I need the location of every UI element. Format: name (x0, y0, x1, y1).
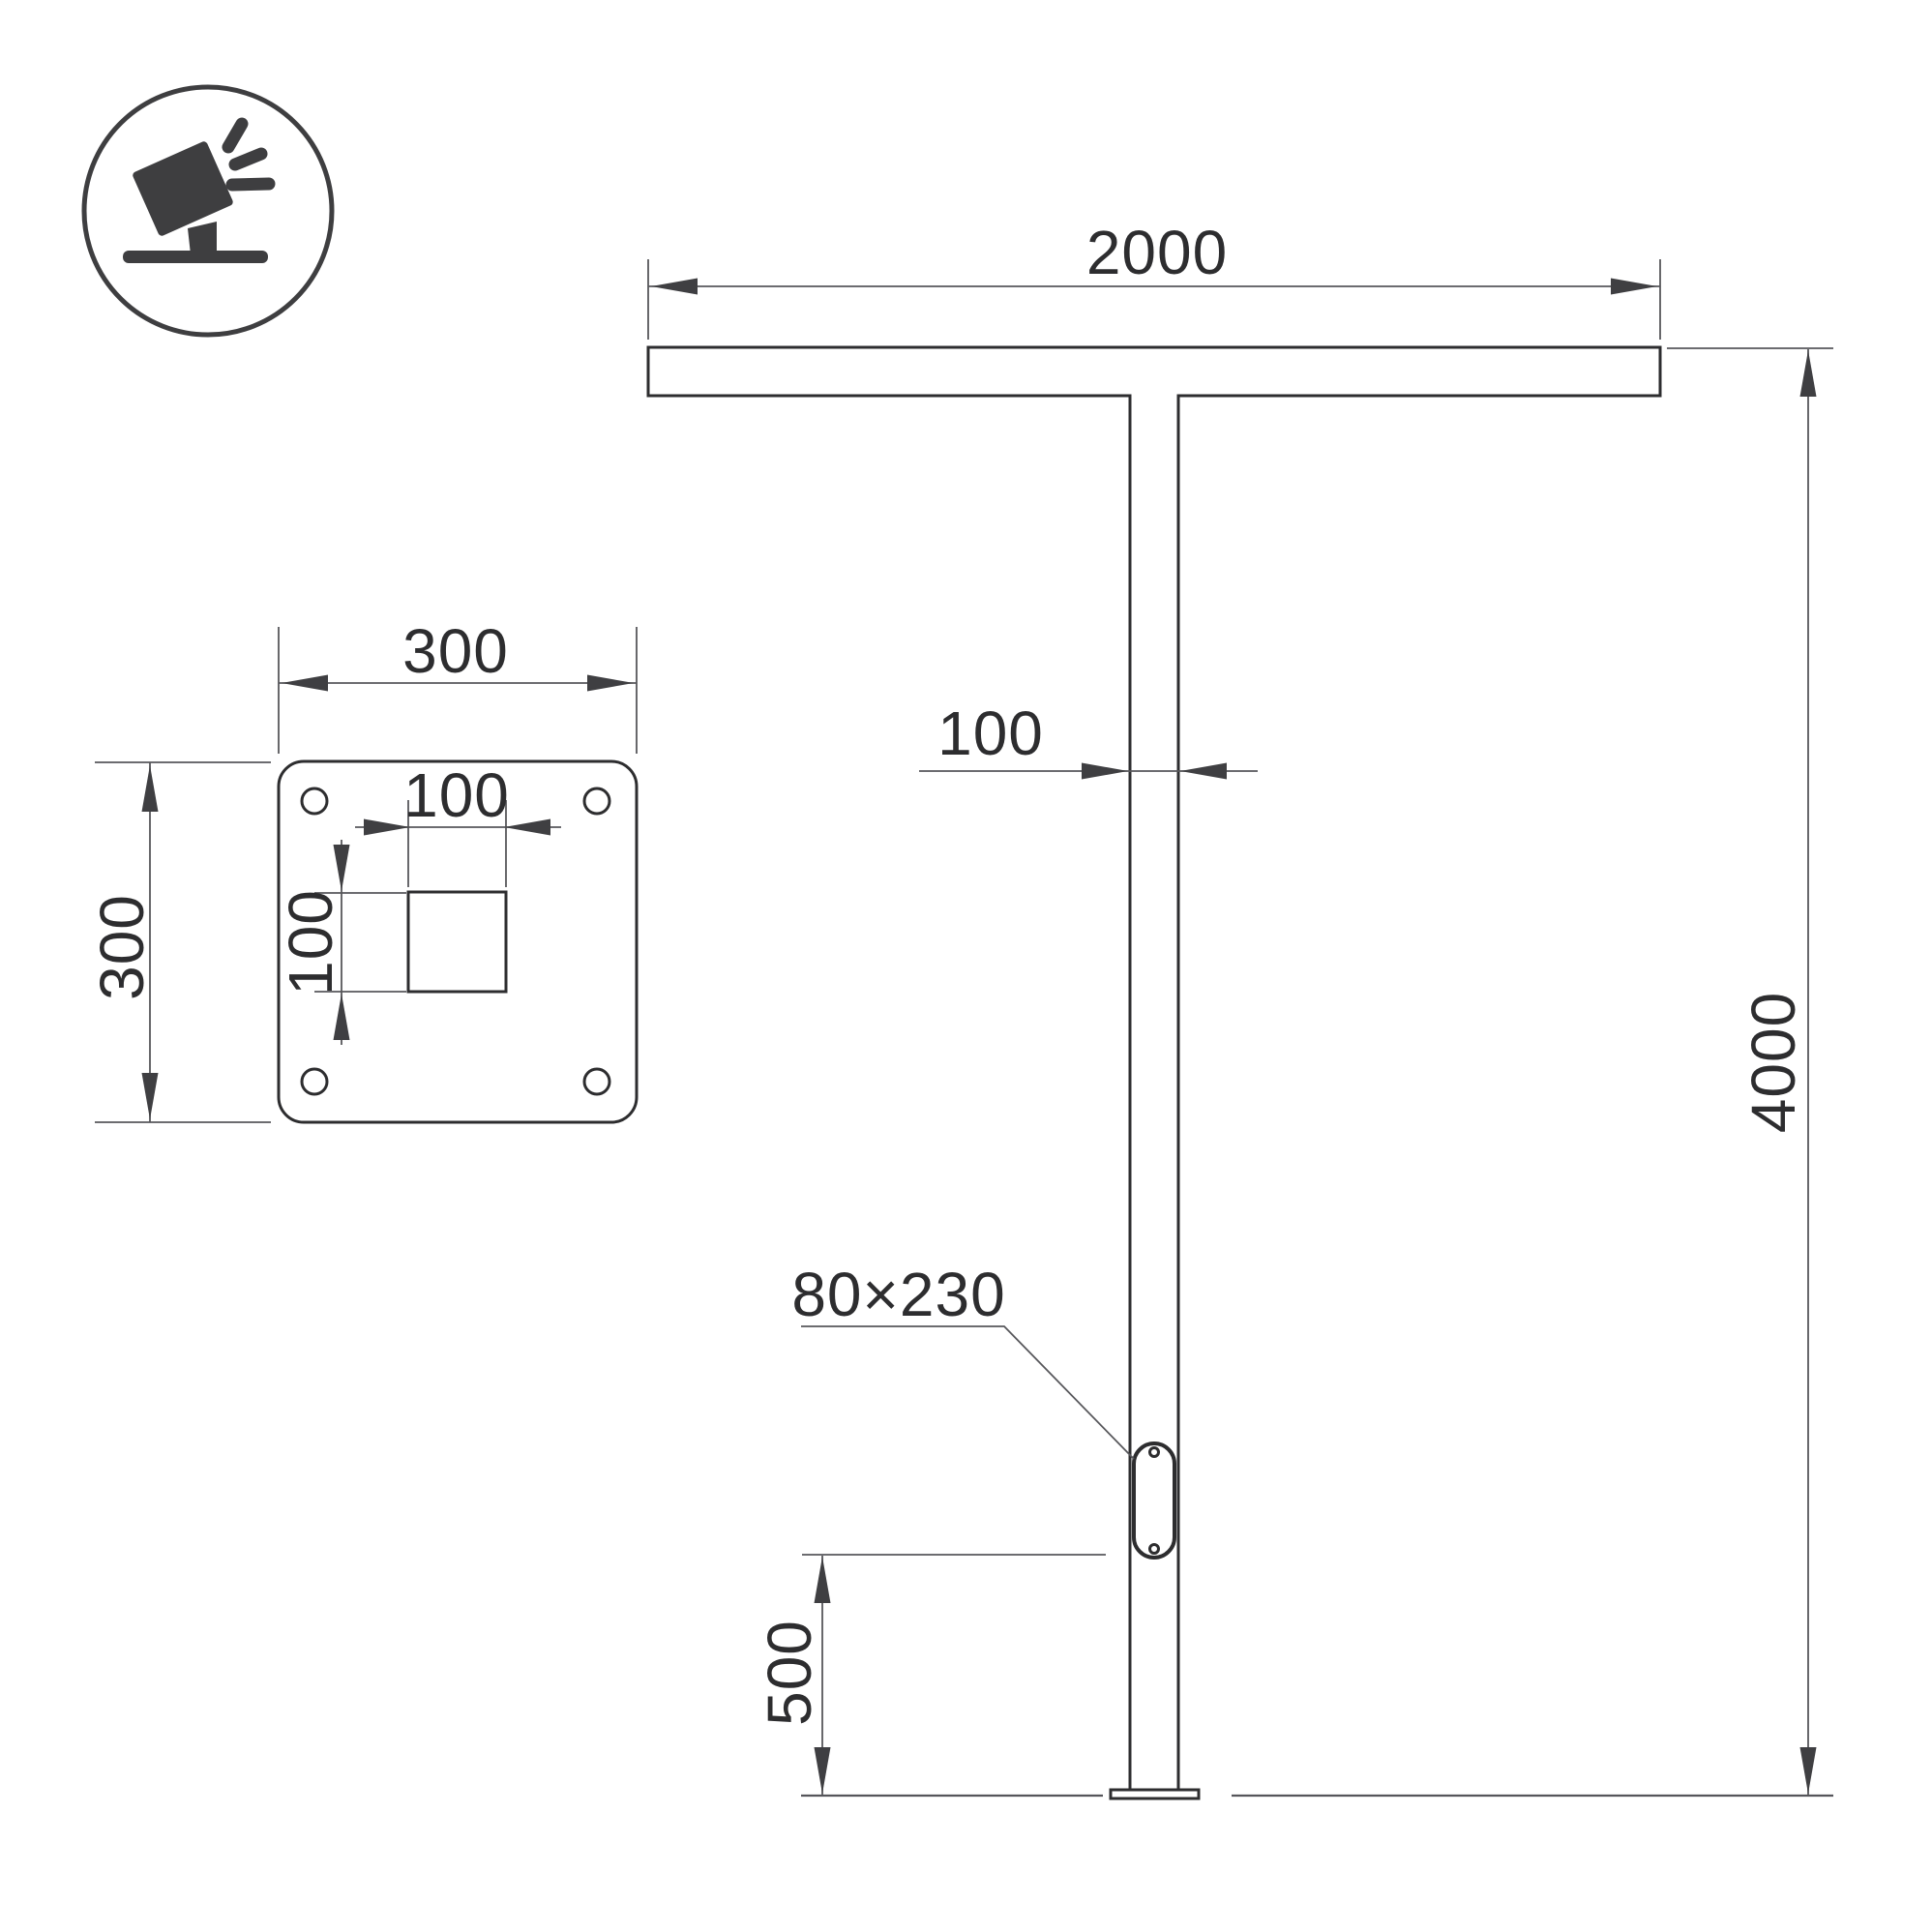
floodlight-post (188, 222, 217, 254)
dim-label-door-offset: 500 (755, 1620, 824, 1726)
dim-label-door-size: 80×230 (791, 1260, 1005, 1329)
dim-pole-width: 100 (919, 698, 1258, 780)
dim-door-offset: 500 (755, 1555, 1106, 1795)
dim-label-socket-height: 100 (276, 889, 345, 996)
dim-plate-height: 300 (87, 762, 271, 1122)
bolt-hole (584, 788, 609, 814)
floodlight-head (132, 140, 234, 237)
front-view: 2000 100 4000 500 80×230 (648, 218, 1833, 1798)
dim-label-arm-width: 2000 (1086, 218, 1228, 287)
door-size-callout: 80×230 (791, 1260, 1134, 1459)
dim-label-pole-width: 100 (937, 698, 1044, 768)
pole-socket-outline (408, 892, 506, 992)
light-ray-icon (232, 184, 269, 185)
dim-label-socket-width: 100 (403, 760, 510, 830)
light-ray-icon (228, 124, 242, 147)
light-ray-icon (235, 154, 261, 164)
door-screw (1150, 1448, 1159, 1457)
dim-total-height: 4000 (1667, 348, 1833, 1795)
access-door (1134, 1443, 1174, 1558)
drawing-canvas: 300 300 100 100 (0, 0, 1932, 1932)
pole-outline (648, 347, 1660, 1790)
base-plate-view: 300 300 100 100 (87, 616, 637, 1122)
bolt-hole (302, 788, 327, 814)
bolt-hole (584, 1069, 609, 1094)
door-screw (1150, 1545, 1159, 1554)
floodlight-base (123, 251, 268, 263)
dim-label-plate-height: 300 (87, 894, 157, 1000)
pole-technical-drawing: 300 300 100 100 (0, 0, 1932, 1932)
dim-arm-width: 2000 (648, 218, 1660, 340)
corner-icon (84, 87, 332, 335)
bolt-hole (302, 1069, 327, 1094)
dim-socket-height: 100 (276, 840, 406, 1045)
dim-socket-width: 100 (355, 760, 561, 887)
leader-line (801, 1326, 1134, 1459)
dim-label-total-height: 4000 (1739, 992, 1808, 1133)
floodlight-icon (123, 124, 269, 263)
base-flange (1111, 1790, 1199, 1798)
dim-label-plate-width: 300 (402, 616, 509, 686)
dim-plate-width: 300 (279, 616, 637, 754)
